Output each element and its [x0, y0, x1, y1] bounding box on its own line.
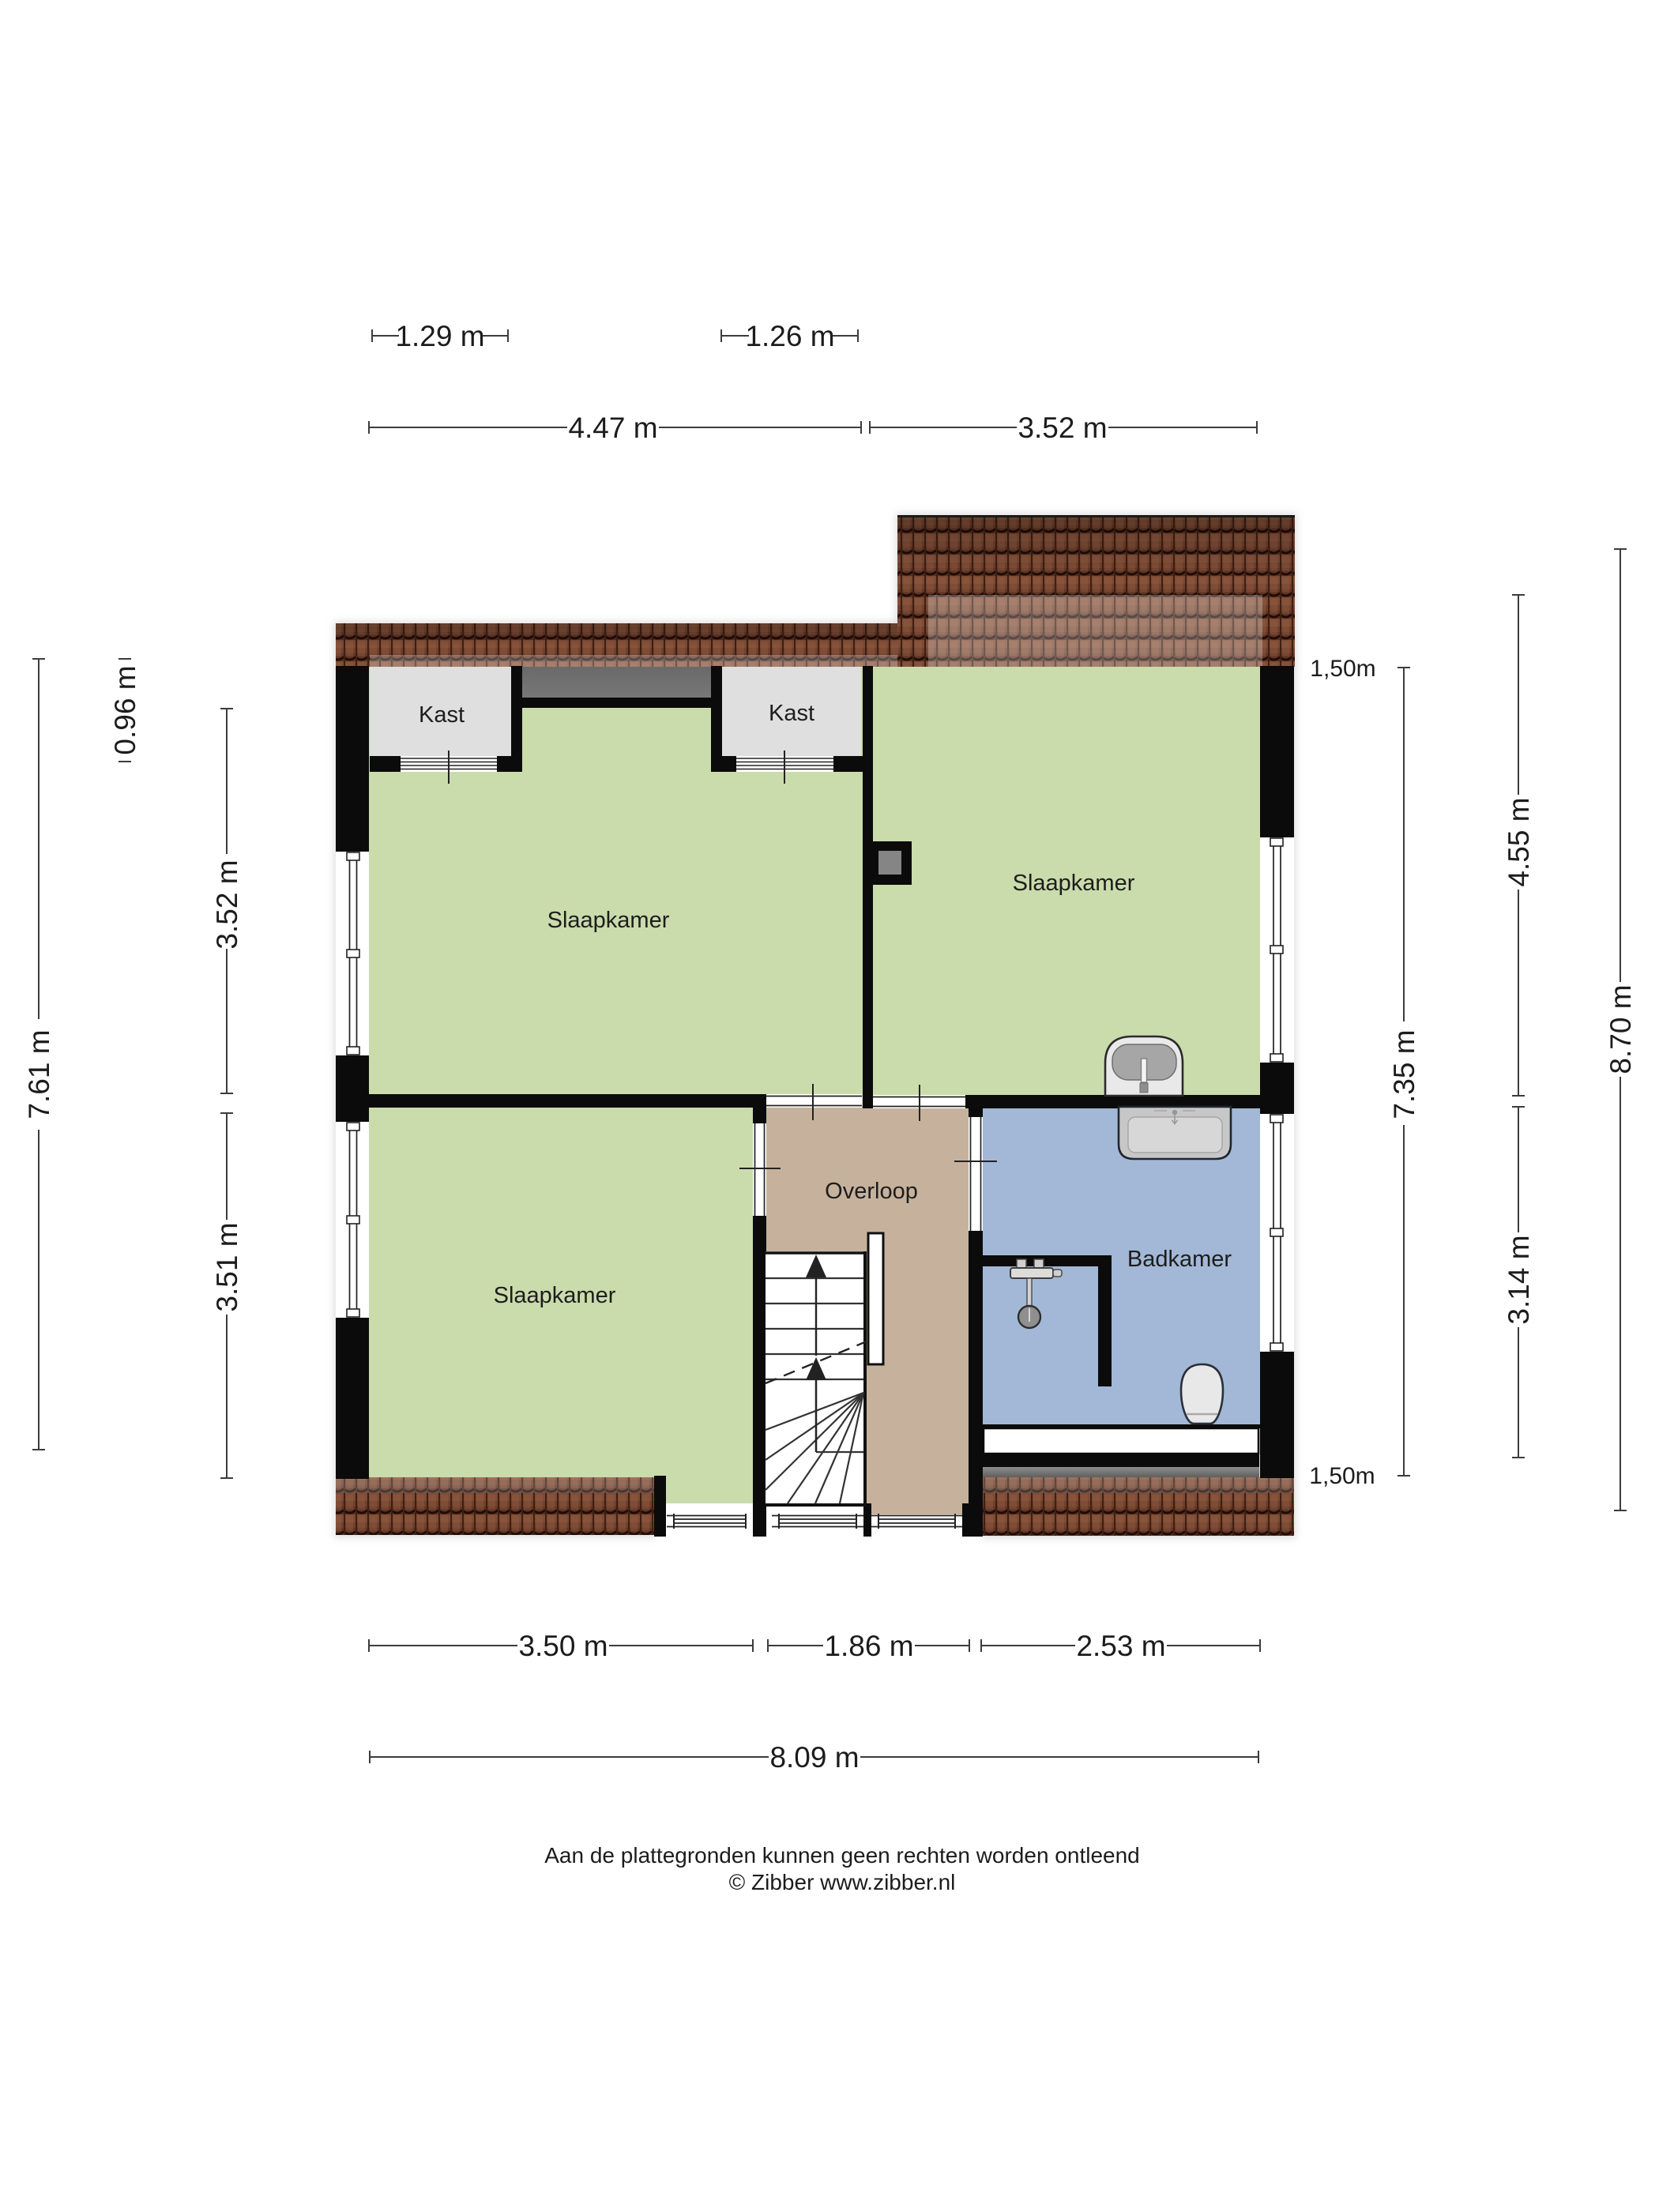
svg-text:8.70 m: 8.70 m [1604, 984, 1637, 1074]
svg-text:Slaapkamer: Slaapkamer [494, 1283, 616, 1308]
svg-text:Badkamer: Badkamer [1127, 1247, 1232, 1272]
svg-text:3.52 m: 3.52 m [1018, 412, 1107, 444]
svg-text:2.53 m: 2.53 m [1076, 1630, 1165, 1662]
svg-text:4.55 m: 4.55 m [1503, 797, 1535, 886]
svg-text:1.86 m: 1.86 m [824, 1630, 913, 1662]
svg-text:Aan de plattegronden kunnen ge: Aan de plattegronden kunnen geen rechten… [544, 1843, 1139, 1868]
svg-text:7.61 m: 7.61 m [23, 1029, 55, 1119]
svg-text:© Zibber www.zibber.nl: © Zibber www.zibber.nl [729, 1870, 956, 1894]
svg-text:1,50m: 1,50m [1309, 1463, 1375, 1489]
svg-text:Kast: Kast [769, 701, 814, 726]
svg-text:Slaapkamer: Slaapkamer [1013, 871, 1135, 896]
svg-text:4.47 m: 4.47 m [568, 412, 657, 444]
svg-text:7.35 m: 7.35 m [1388, 1029, 1420, 1119]
svg-text:1.29 m: 1.29 m [395, 320, 484, 352]
svg-text:1.26 m: 1.26 m [745, 320, 834, 352]
svg-text:Slaapkamer: Slaapkamer [547, 908, 670, 933]
svg-text:0.96 m: 0.96 m [109, 665, 141, 754]
svg-text:3.50 m: 3.50 m [518, 1630, 608, 1662]
svg-text:3.52 m: 3.52 m [211, 860, 243, 949]
svg-text:8.09 m: 8.09 m [769, 1741, 859, 1774]
svg-text:3.51 m: 3.51 m [211, 1222, 243, 1311]
svg-text:Kast: Kast [419, 702, 465, 728]
svg-text:Overloop: Overloop [825, 1179, 918, 1204]
svg-text:3.14 m: 3.14 m [1503, 1235, 1535, 1324]
svg-text:1,50m: 1,50m [1310, 656, 1375, 682]
